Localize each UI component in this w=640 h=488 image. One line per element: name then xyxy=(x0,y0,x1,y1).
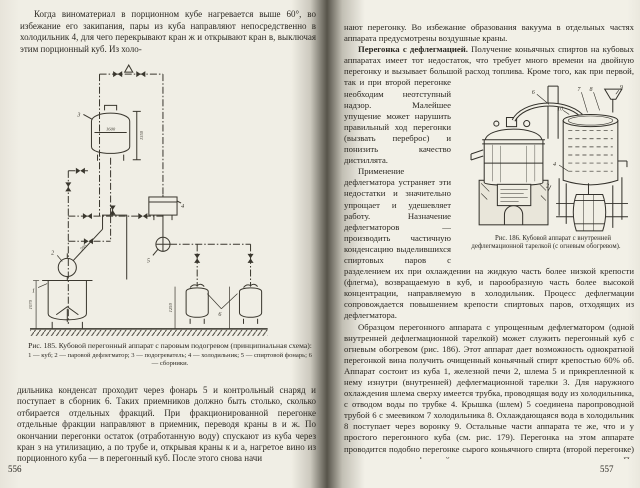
fig186-label-7: 7 xyxy=(577,87,581,93)
paragraph-lead: Перегонка с дефлегмацией. xyxy=(358,44,468,54)
paragraph-text: Образцом перегонного аппарата с упрощенн… xyxy=(344,322,634,459)
page-number-right: 557 xyxy=(600,464,614,474)
collector-vessel-right xyxy=(239,284,261,324)
page-number-left: 556 xyxy=(8,464,22,474)
fig185-label-3: 3 xyxy=(76,112,80,118)
ground-hatch xyxy=(30,330,268,336)
fig186-label-6: 6 xyxy=(532,90,535,96)
fig186-label-8: 8 xyxy=(590,87,593,93)
fig185-label-1: 1 xyxy=(32,289,35,295)
fig186-label-2: 2 xyxy=(546,184,549,190)
condenser-tank xyxy=(149,197,177,215)
figure-186-caption: Рис. 186. Кубовой аппарат с внутренней д… xyxy=(458,235,634,251)
fig185-dim-1070: 1070 xyxy=(29,299,34,309)
fig186-label-9: 9 xyxy=(620,85,623,91)
figure-185-schematic: 3 4 5 6 1 2 1600 1350 1070 1250 595 xyxy=(24,64,316,338)
heater-vessel xyxy=(91,113,129,153)
vent-triangle-icon xyxy=(125,65,133,72)
cooler-tub xyxy=(563,121,618,185)
figure-186-illustration: 6 10 7 8 9 4 2 xyxy=(468,82,630,232)
spout xyxy=(471,150,483,160)
figure-185-caption-legend: 1 — куб; 2 — паровой дефлегматор; 3 — по… xyxy=(28,352,312,368)
fig185-dim-1600: 1600 xyxy=(106,128,116,133)
figure-185-caption: Рис. 185. Кубовой перегонный аппарат с п… xyxy=(28,341,312,368)
figure-185-caption-title: Рис. 185. Кубовой перегонный аппарат с п… xyxy=(28,341,312,350)
paragraph-deflegmation: 6 10 7 8 9 4 2 Рис. 186. Кубовой аппарат… xyxy=(344,44,634,166)
fig185-dim-1350: 1350 xyxy=(140,130,145,140)
funnel xyxy=(605,89,622,112)
fig185-dim-1250: 1250 xyxy=(169,302,174,312)
pipework xyxy=(30,65,268,336)
paragraph-text: нают перегонку. Во избежание образования… xyxy=(344,22,634,44)
post xyxy=(548,86,558,139)
barrel xyxy=(573,195,605,231)
tap xyxy=(618,161,627,167)
left-page-top-paragraph: Когда виноматериал в порционном кубе наг… xyxy=(20,9,316,68)
paragraph-text: дильника конденсат проходит через фонарь… xyxy=(17,385,316,465)
paragraph-text: Когда виноматериал в порционном кубе наг… xyxy=(20,9,316,55)
fig185-label-4: 4 xyxy=(181,203,184,210)
figure-186: 6 10 7 8 9 4 2 Рис. 186. Кубовой аппарат… xyxy=(458,82,634,251)
valve-icons xyxy=(65,71,253,263)
label-panel xyxy=(497,185,530,206)
right-page-text: нают перегонку. Во избежание образования… xyxy=(344,22,634,459)
figure-185: 3 4 5 6 1 2 1600 1350 1070 1250 595 xyxy=(24,64,316,340)
collector-vessel-left xyxy=(186,284,208,324)
fig185-label-2: 2 xyxy=(51,250,54,256)
left-page-bottom-paragraph: дильника конденсат проходит через фонарь… xyxy=(17,385,316,465)
still-cube xyxy=(42,253,92,329)
fig185-label-5: 5 xyxy=(147,258,150,264)
book-spread: Когда виноматериал в порционном кубе наг… xyxy=(0,0,640,488)
fig186-label-4: 4 xyxy=(553,161,556,168)
fig186-label-10: 10 xyxy=(557,107,563,113)
fig185-label-6: 6 xyxy=(218,312,221,318)
